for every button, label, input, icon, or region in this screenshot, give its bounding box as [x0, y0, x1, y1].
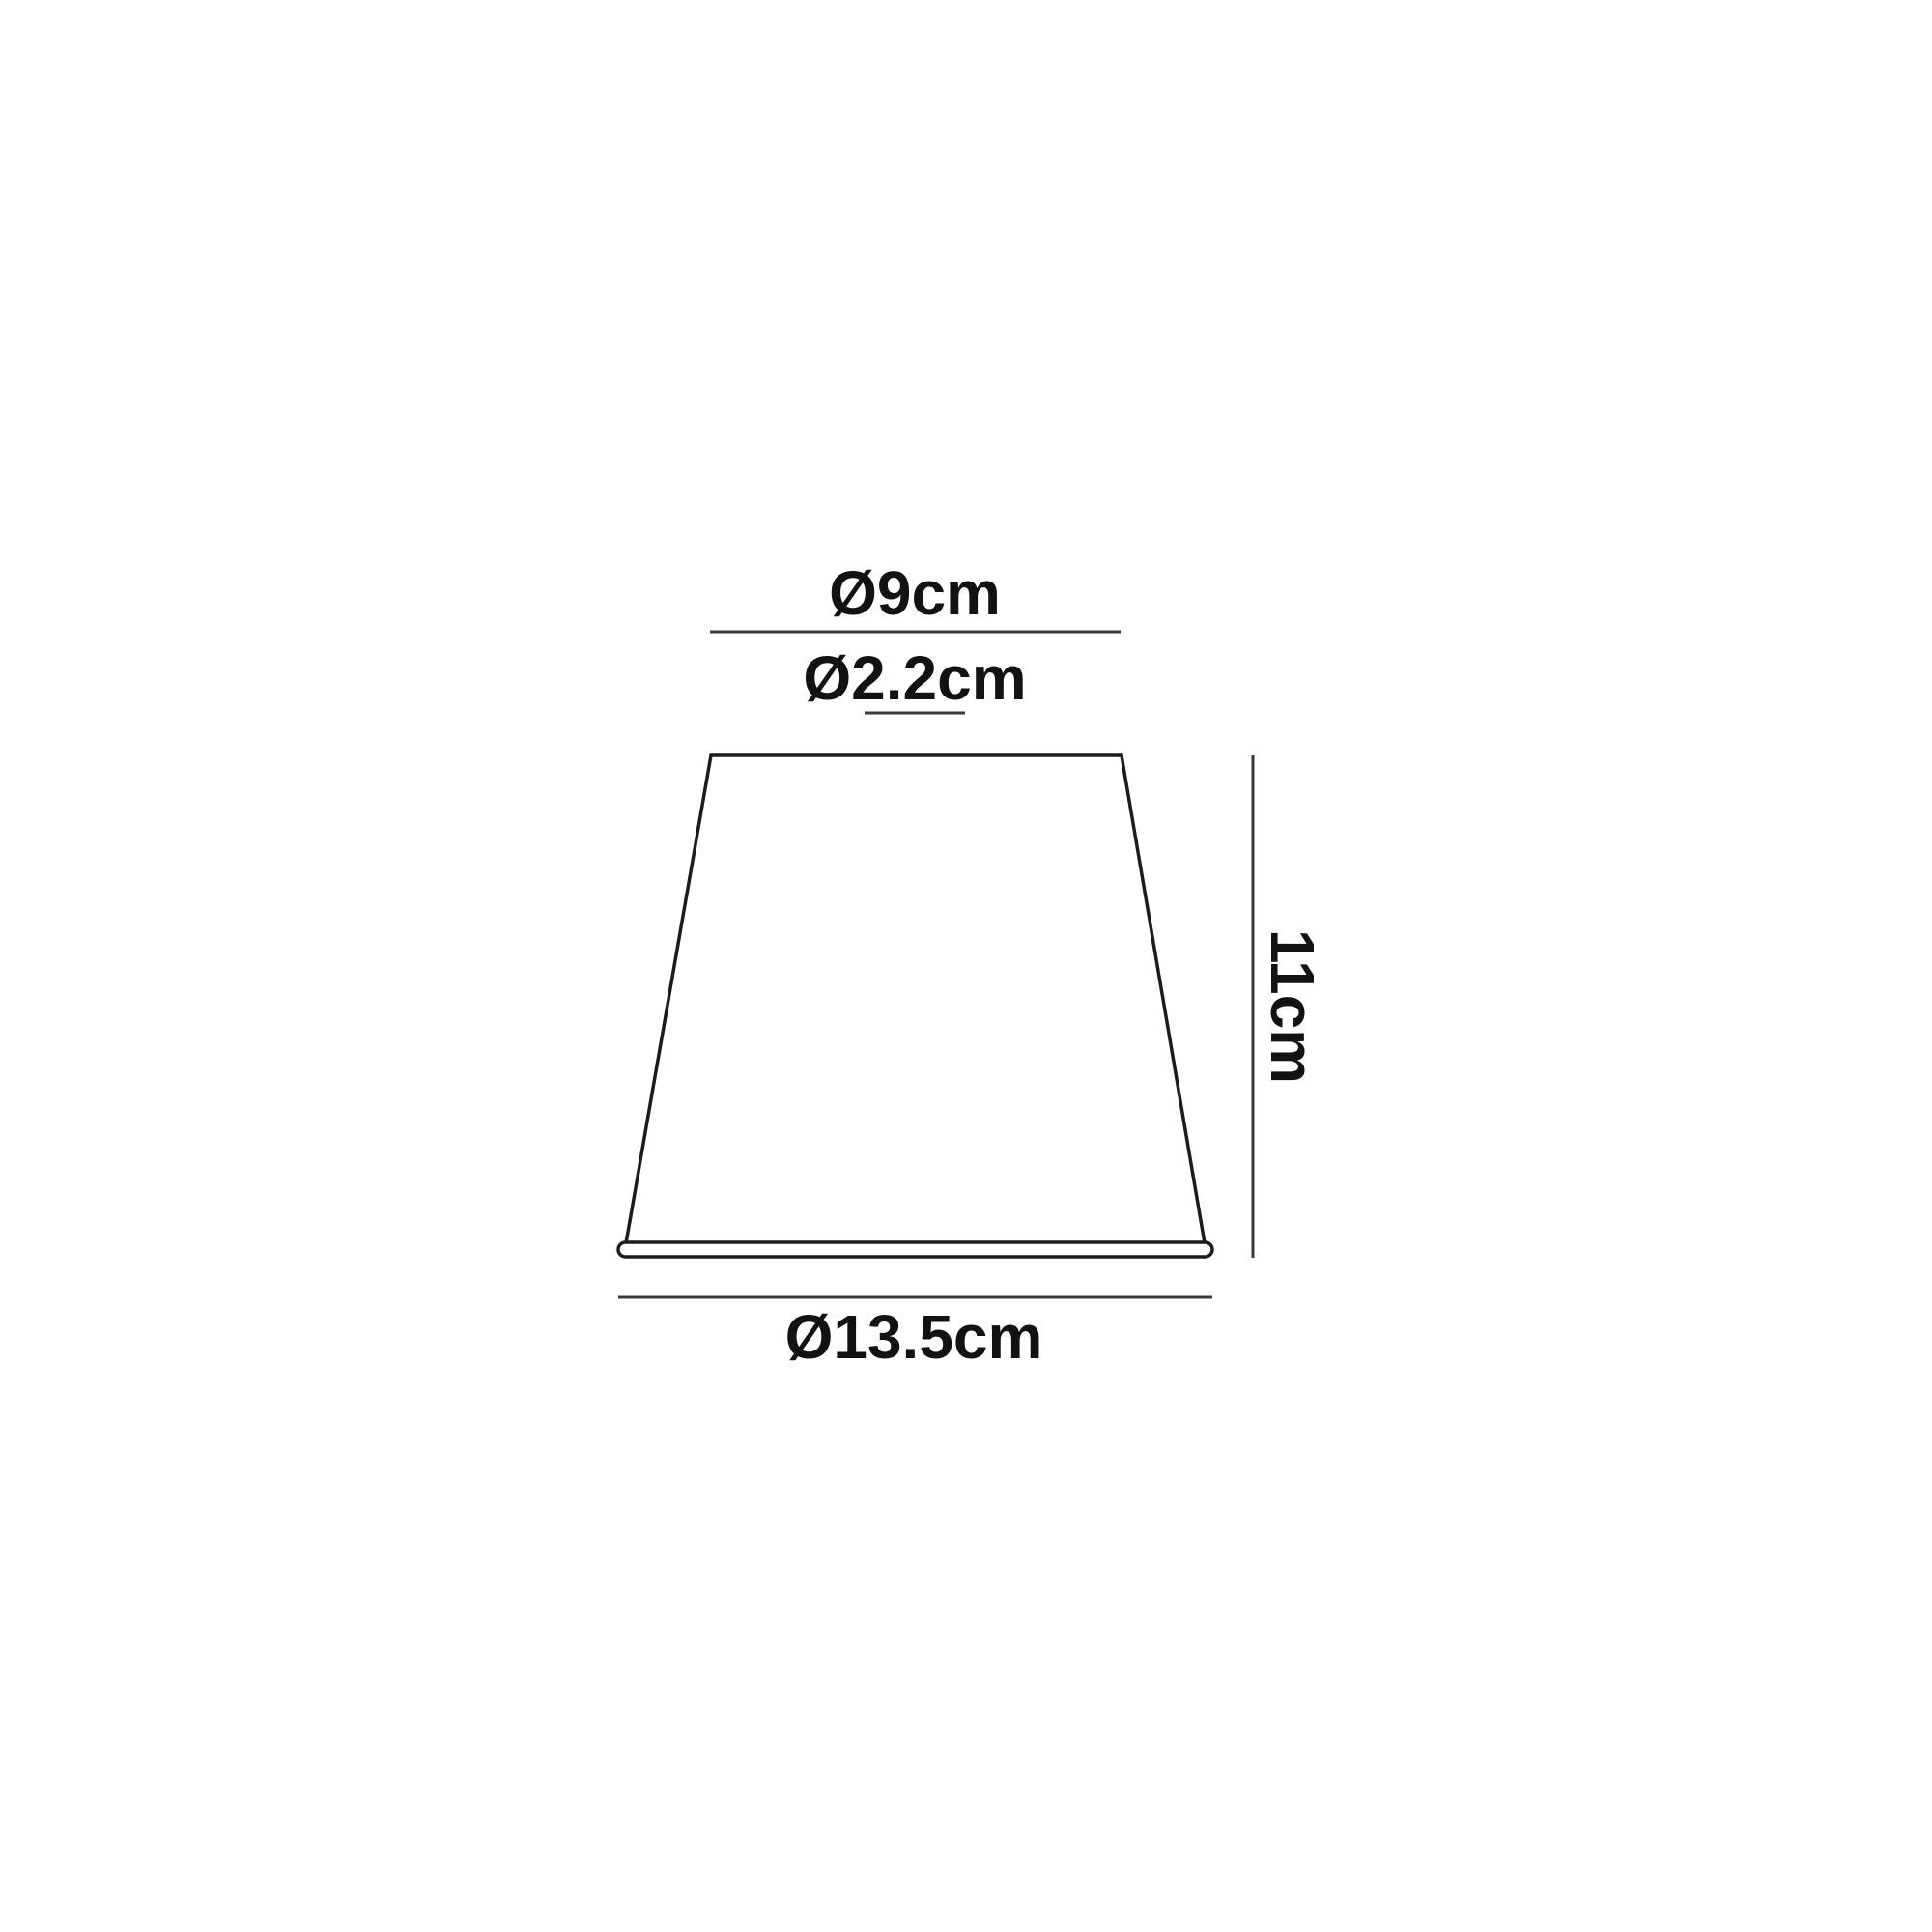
label-height: 11cm [1262, 929, 1323, 1084]
lampshade-diagram-svg [0, 0, 1932, 1932]
dimension-diagram: Ø9cm Ø2.2cm 11cm Ø13.5cm [0, 0, 1932, 1932]
label-fitter-diameter: Ø2.2cm [803, 647, 1026, 709]
label-bottom-diameter: Ø13.5cm [785, 1306, 1043, 1368]
shade-bottom-rim [618, 1242, 1212, 1257]
shade-body-outline [626, 755, 1205, 1243]
label-top-diameter: Ø9cm [829, 562, 1001, 624]
